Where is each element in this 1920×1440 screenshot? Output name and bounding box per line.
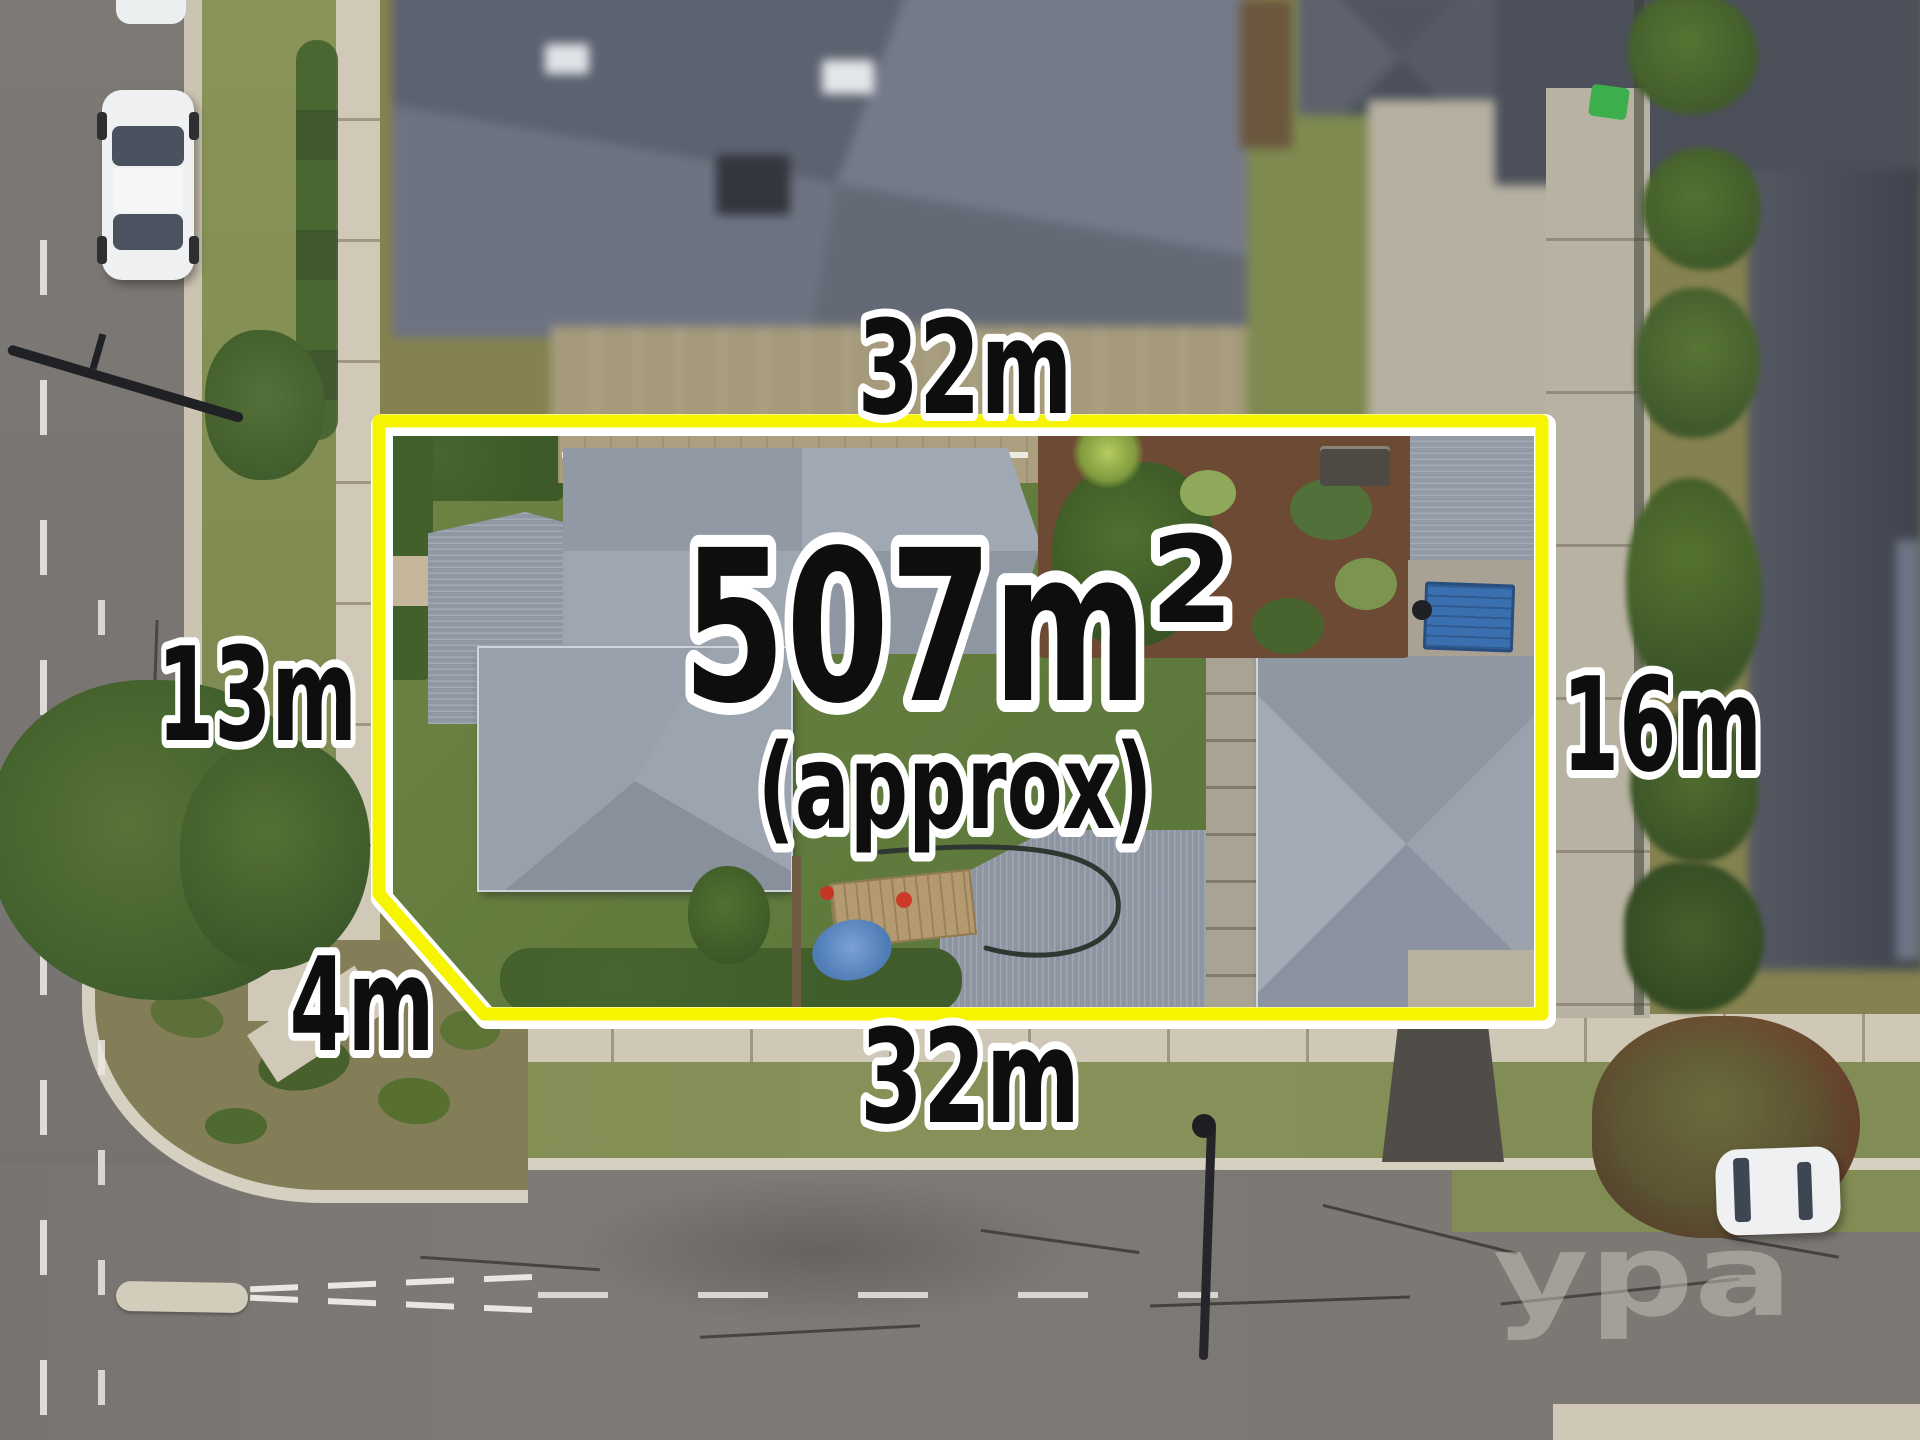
dimension-label-splay: 4m <box>290 929 435 1081</box>
dimension-label-right: 16m <box>1562 649 1762 801</box>
area-superscript: 2 <box>1150 512 1234 651</box>
aerial-property-photo: 32m 13m 16m 4m 32m 507m 2 (approx) ypa <box>0 0 1920 1440</box>
dimension-label-left: 13m <box>157 619 357 771</box>
garden-hose <box>880 847 1118 955</box>
dimension-label-bottom: 32m <box>860 1001 1080 1153</box>
annotation-overlay: 32m 13m 16m 4m 32m 507m 2 (approx) ypa <box>0 0 1920 1440</box>
area-approx-label: (approx) <box>758 718 1153 856</box>
area-label: 507m <box>683 505 1148 750</box>
dimension-label-top: 32m <box>858 292 1073 444</box>
agency-watermark: ypa <box>1493 1209 1793 1343</box>
